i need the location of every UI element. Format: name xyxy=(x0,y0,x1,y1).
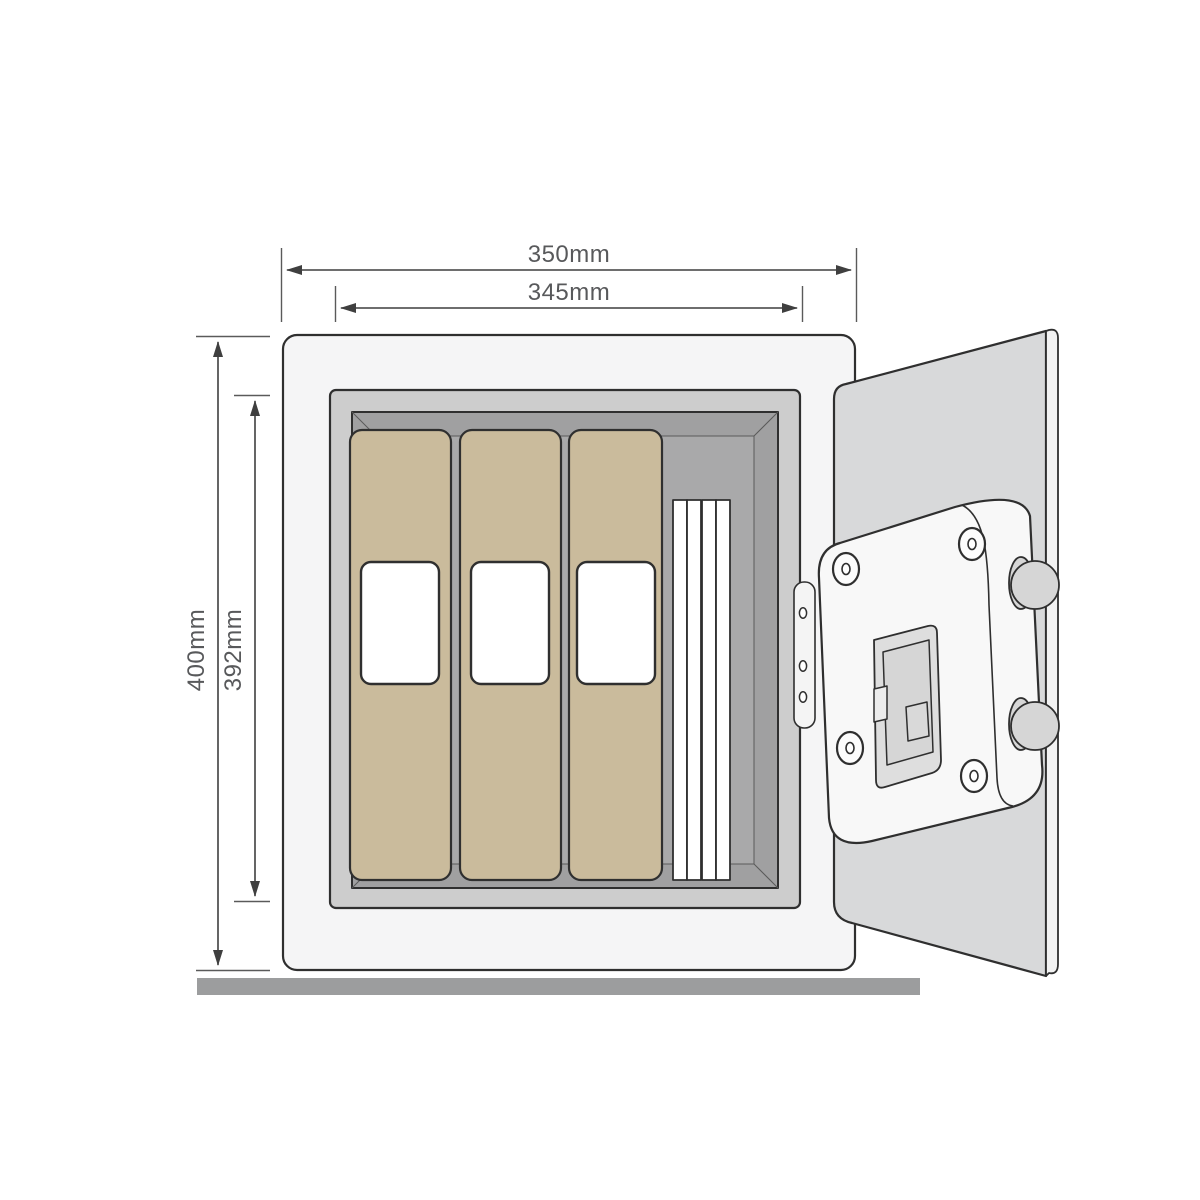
safe-door xyxy=(819,330,1059,976)
compartment-latch xyxy=(874,686,887,722)
dim-label-outer-height: 400mm xyxy=(183,609,210,692)
paper-sheet xyxy=(673,500,687,880)
dim-label-inner-height: 392mm xyxy=(220,609,247,692)
dim-label-outer-width: 350mm xyxy=(528,241,611,268)
hinge-plate xyxy=(794,582,815,728)
dim-label-inner-width: 345mm xyxy=(528,279,611,306)
battery-compartment xyxy=(874,626,941,788)
binder-3 xyxy=(569,430,662,880)
ground-line xyxy=(197,978,920,995)
bolt-cap xyxy=(1011,702,1059,750)
diagram-svg: 350mm 345mm 400mm 392mm xyxy=(0,0,1200,1200)
screw-center xyxy=(842,564,850,575)
paper-sheet xyxy=(716,500,730,880)
hinge-hole xyxy=(799,692,806,702)
screw-center xyxy=(968,539,976,550)
binder-label-window xyxy=(577,562,655,684)
screw-center xyxy=(970,771,978,782)
door-edge-face xyxy=(1046,330,1058,976)
binder-label-window xyxy=(471,562,549,684)
bolt-cap xyxy=(1011,561,1059,609)
hinge-hole xyxy=(799,661,806,671)
lock-plate-assembly xyxy=(819,500,1043,843)
paper-sheet xyxy=(687,500,701,880)
binder-2 xyxy=(460,430,561,880)
hinge xyxy=(794,582,815,728)
paper-stack xyxy=(673,500,730,880)
binder-label-window xyxy=(361,562,439,684)
binder-1 xyxy=(350,430,451,880)
screw-center xyxy=(846,743,854,754)
keyhole-cover xyxy=(906,702,929,741)
safe-dimension-diagram: 350mm 345mm 400mm 392mm xyxy=(0,0,1200,1200)
hinge-hole xyxy=(799,608,806,618)
paper-sheet xyxy=(702,500,716,880)
